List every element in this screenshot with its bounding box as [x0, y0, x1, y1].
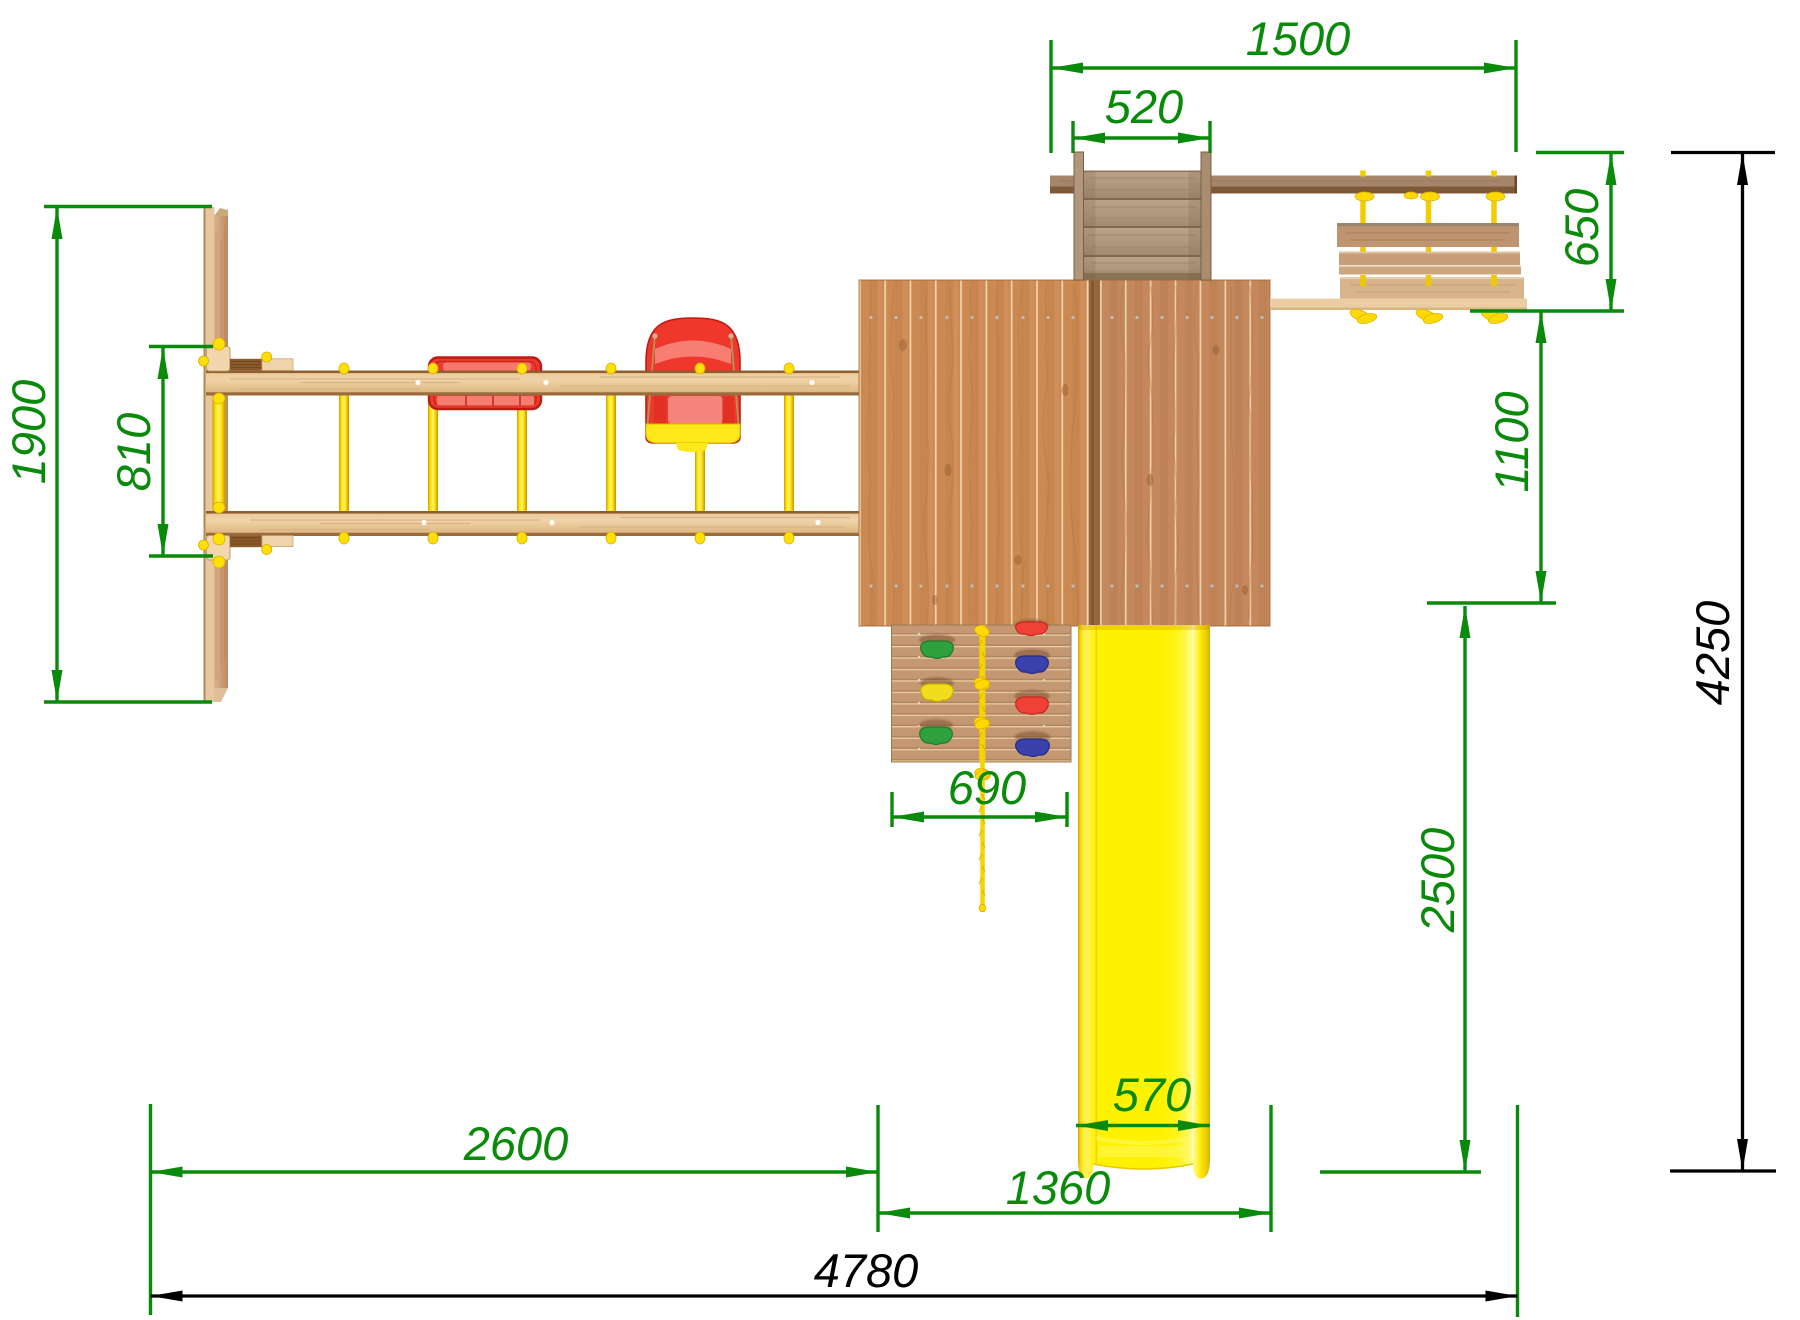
svg-text:4250: 4250	[1686, 601, 1739, 706]
svg-text:2500: 2500	[1411, 828, 1464, 934]
svg-text:1100: 1100	[1485, 391, 1538, 492]
svg-text:2600: 2600	[463, 1117, 569, 1170]
svg-text:1360: 1360	[1006, 1161, 1111, 1214]
svg-text:1500: 1500	[1246, 12, 1351, 65]
svg-text:4780: 4780	[814, 1244, 919, 1297]
svg-text:650: 650	[1555, 189, 1608, 267]
svg-text:570: 570	[1113, 1068, 1191, 1121]
svg-text:810: 810	[107, 413, 160, 491]
svg-text:690: 690	[948, 761, 1026, 814]
svg-text:1900: 1900	[2, 380, 55, 485]
svg-text:520: 520	[1105, 80, 1183, 133]
